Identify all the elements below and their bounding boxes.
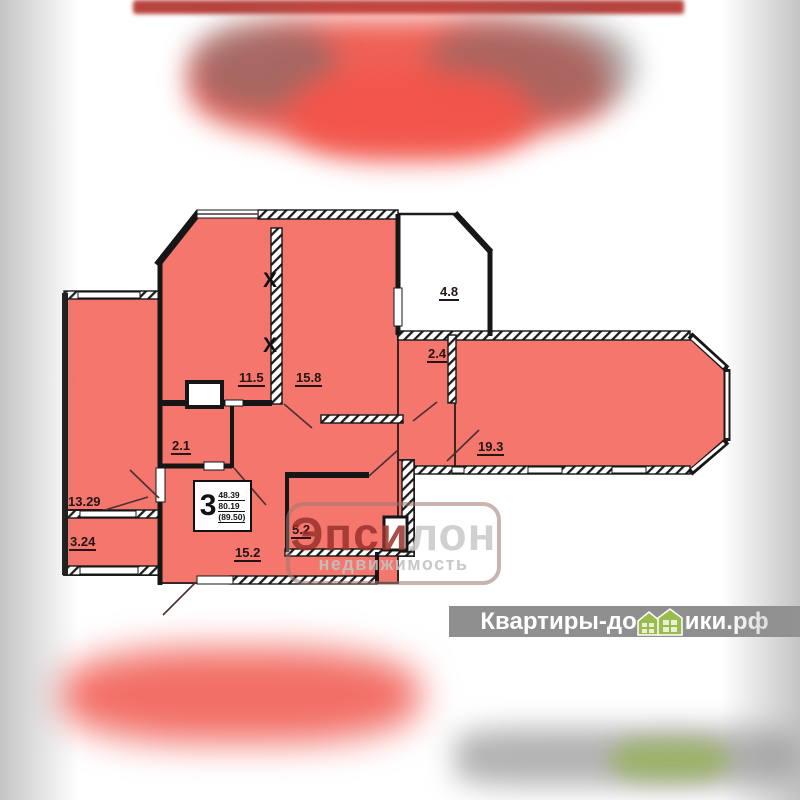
wall-top <box>258 210 398 219</box>
window-leftblock-mid <box>80 511 136 517</box>
room-area-label-2-1: 2.1 <box>171 439 191 455</box>
shaft-box-2-1 <box>187 382 222 407</box>
window-wing-bottom-3 <box>612 467 646 473</box>
apartment-stamp: 3 48.39 80.19 (89.50) <box>193 480 252 532</box>
room-area-label-15-8: 15.8 <box>295 371 322 387</box>
stamp-areas: 48.39 80.19 (89.50) <box>218 490 245 523</box>
wall-partition-x <box>271 228 282 404</box>
room-area-label-15-2: 15.2 <box>234 546 261 562</box>
entrance-opening <box>197 576 233 584</box>
floor-plan-drawing <box>0 0 800 800</box>
wall-under-15-8 <box>321 415 403 423</box>
site-watermark: Квартиры-до ики.рф <box>449 606 800 637</box>
agency-name-left: Эпси <box>291 508 409 560</box>
balcony-door-opening <box>394 288 402 326</box>
agency-watermark: Эпсилон недвижимость <box>286 502 501 585</box>
room-area-label-13-29: 13.29 <box>67 495 102 511</box>
agency-name-right: лон <box>409 508 497 560</box>
site-name-suffix: ики.рф <box>685 610 769 634</box>
room-area-label-19-3: 19.3 <box>477 440 504 456</box>
door-2-1-top <box>225 400 243 406</box>
room-area-label-4-8: 4.8 <box>439 285 459 301</box>
agency-subtitle: недвижимость <box>319 554 469 575</box>
stamp-total-with-balcony: (89.50) <box>218 512 245 523</box>
x-mark-lower: X <box>263 335 277 356</box>
agency-name: Эпсилон <box>291 512 497 556</box>
site-name-prefix: Квартиры-до <box>480 610 636 634</box>
wall-wing-top <box>398 331 690 340</box>
wall-bath-top <box>285 472 369 478</box>
stamp-total-area: 80.19 <box>218 501 245 512</box>
room-area-label-11-5: 11.5 <box>238 371 265 387</box>
floorplan-photo: 11.5 15.8 2.4 4.8 19.3 2.1 13.29 3.24 5.… <box>0 0 800 800</box>
door-2-1-bottom <box>204 462 224 470</box>
window-leftblock-top <box>78 292 140 298</box>
room-area-label-3-24: 3.24 <box>69 535 96 551</box>
window-wing-bottom-2 <box>528 467 562 473</box>
room-area-label-2-4: 2.4 <box>427 347 447 363</box>
stamp-room-count: 3 <box>200 491 217 521</box>
door-swing-entrance <box>163 582 196 615</box>
houses-icon <box>636 608 686 636</box>
room-area-left-block <box>64 295 160 575</box>
x-mark-upper: X <box>263 270 277 291</box>
stamp-living-area: 48.39 <box>218 490 245 501</box>
window-wing-bottom-1 <box>452 467 464 473</box>
wall-wing-left <box>448 335 456 403</box>
window-leftblock-bottom <box>80 567 138 574</box>
